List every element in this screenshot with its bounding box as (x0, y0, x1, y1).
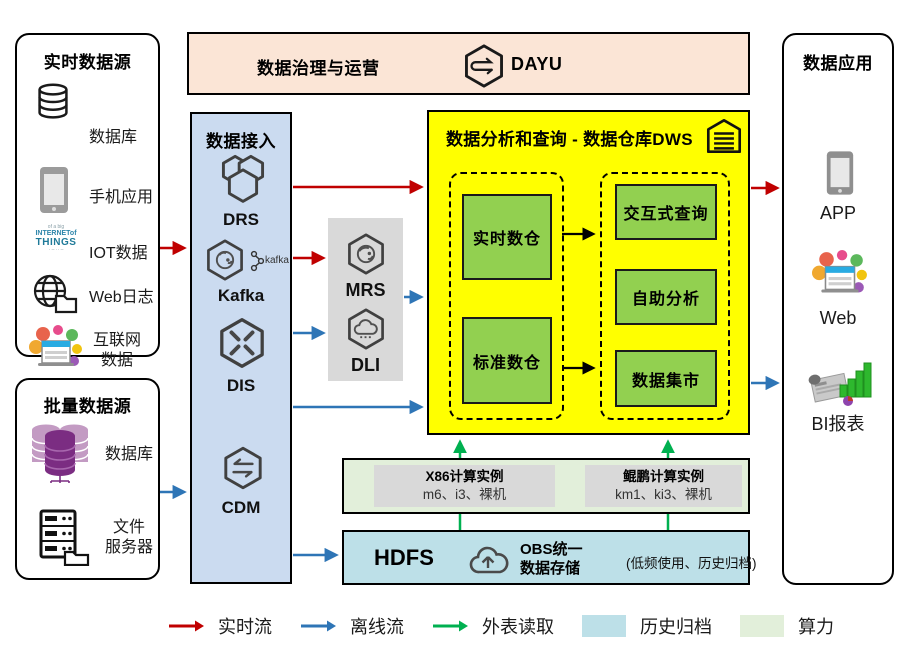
dws-node-standard: 标准数仓 (462, 317, 552, 404)
dayu-icon (461, 42, 507, 90)
compute-x86-spec: m6、i3、裸机 (423, 486, 506, 504)
compute-x86-name: X86计算实例 (425, 468, 503, 486)
storage-panel: HDFS OBS统一 数据存储 (低频使用、历史归档) (342, 530, 750, 585)
source-item-label: 互联网 数据 (93, 331, 141, 371)
purple-database-icon (29, 420, 91, 486)
obs-label: OBS统一 数据存储 (520, 541, 583, 579)
external-read-arrow-icon (432, 619, 468, 633)
ingestion-panel: 数据接入 DRS kafka Kafka (190, 112, 292, 584)
archive-swatch (582, 615, 626, 637)
compute-swatch (740, 615, 784, 637)
internet-collage-icon (29, 325, 83, 377)
application-label: BI报表 (784, 410, 892, 436)
realtime-sources-panel: 实时数据源 数据库 手机应用 of a big INTERNETof THING… (15, 33, 160, 357)
internet-collage-icon (812, 250, 868, 304)
application-label: APP (784, 203, 892, 224)
compute-kunpeng-name: 鲲鹏计算实例 (623, 468, 704, 486)
processing-panel: MRS DLI (328, 218, 403, 381)
governance-banner: 数据治理与运营 DAYU (187, 32, 750, 95)
legend-label-archive: 历史归档 (640, 613, 712, 639)
dws-node-data-mart: 数据集市 (615, 350, 717, 407)
database-icon (30, 80, 76, 126)
realtime-flow-arrow-icon (168, 619, 204, 633)
legend-label-offline: 离线流 (350, 613, 404, 639)
file-server-icon (37, 508, 91, 566)
globe-folder-icon (31, 271, 79, 315)
source-item-label: 文件 服务器 (105, 518, 153, 558)
kafka-icon (202, 236, 248, 284)
source-item-label: IOT数据 (89, 239, 148, 263)
legend-label-realtime: 实时流 (218, 613, 272, 639)
cdm-icon (218, 442, 268, 494)
source-item-label: 手机应用 (89, 183, 153, 207)
bi-report-icon (808, 355, 872, 407)
batch-sources-panel: 批量数据源 数据库 (15, 378, 160, 580)
dws-node-realtime: 实时数仓 (462, 194, 552, 280)
source-item-label: 数据库 (105, 440, 153, 464)
legend: 实时流 离线流 外表读取 历史归档 算力 (168, 613, 848, 639)
source-item-label: 数据库 (89, 123, 137, 147)
compute-panel: X86计算实例 m6、i3、裸机 鲲鹏计算实例 km1、ki3、裸机 (342, 458, 750, 514)
compute-kunpeng-spec: km1、ki3、裸机 (615, 486, 712, 504)
ingestion-item-label: DIS (192, 376, 290, 396)
batch-sources-title: 批量数据源 (17, 392, 158, 417)
source-item-label: Web日志 (89, 283, 154, 307)
ingestion-item-label: DRS (192, 210, 290, 230)
drs-icon (216, 152, 270, 208)
realtime-sources-title: 实时数据源 (17, 48, 158, 73)
applications-panel: 数据应用 APP Web (782, 33, 894, 585)
legend-label-external-read: 外表读取 (482, 613, 554, 639)
kafka-logo-icon (250, 250, 264, 272)
legend-label-compute: 算力 (798, 613, 834, 639)
processing-item-label: DLI (328, 355, 403, 376)
dws-node-interactive-query: 交互式查询 (615, 184, 717, 240)
processing-item-label: MRS (328, 280, 403, 301)
ingestion-item-label: Kafka (192, 286, 290, 306)
architecture-diagram: 实时数据源 数据库 手机应用 of a big INTERNETof THING… (0, 0, 914, 651)
dli-icon (343, 305, 389, 353)
dws-node-self-analysis: 自助分析 (615, 269, 717, 325)
storage-note: (低频使用、历史归档) (626, 552, 757, 572)
dis-icon (214, 314, 270, 372)
warehouse-icon (704, 117, 744, 155)
dws-title: 数据分析和查询 - 数据仓库DWS (446, 125, 693, 150)
governance-title: 数据治理与运营 (257, 54, 380, 79)
phone-icon (37, 165, 71, 215)
offline-flow-arrow-icon (300, 619, 336, 633)
hdfs-label: HDFS (374, 545, 434, 571)
phone-icon (824, 148, 856, 198)
iot-cloud-icon: of a big INTERNETof THINGS · – ·· – (29, 225, 83, 253)
compute-x86-cell: X86计算实例 m6、i3、裸机 (374, 465, 555, 507)
applications-title: 数据应用 (784, 49, 892, 74)
kafka-mark-label: kafka (265, 255, 289, 266)
mrs-icon (343, 230, 389, 278)
dws-panel: 数据分析和查询 - 数据仓库DWS 实时数仓 标准数仓 交互式查询 自助分析 数… (427, 110, 750, 435)
ingestion-title: 数据接入 (192, 127, 290, 152)
compute-kunpeng-cell: 鲲鹏计算实例 km1、ki3、裸机 (585, 465, 742, 507)
application-label: Web (784, 308, 892, 329)
ingestion-item-label: CDM (192, 498, 290, 518)
obs-cloud-icon (466, 538, 514, 580)
governance-product: DAYU (511, 54, 562, 75)
